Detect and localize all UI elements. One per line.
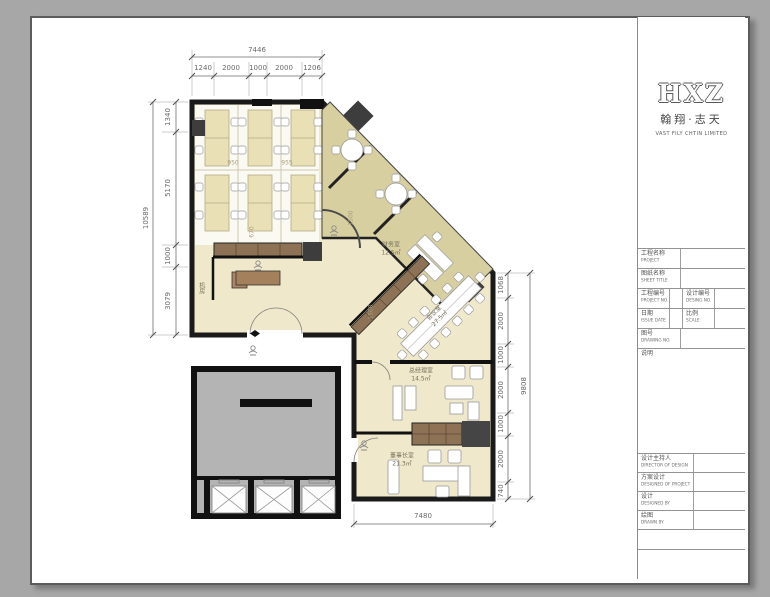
sign-row-designed: 设计DESIGNED BY	[638, 492, 745, 511]
signature-table: 设计主持人DIRECTOR OF DESIGN 方案设计DESIGNED OF …	[638, 453, 745, 550]
sign-row-director: 设计主持人DIRECTOR OF DESIGN	[638, 454, 745, 473]
info-row-drawing-no: 图号DRAWING NO.	[638, 329, 745, 349]
label-cn: 说明	[641, 350, 681, 358]
label-en: DIRECTOR OF DESIGN	[641, 463, 685, 468]
value-cell	[681, 349, 745, 391]
sign-row-drawn: 绘图DRAWN BY	[638, 511, 745, 530]
room-label-gm: 总经理室14.5㎡	[409, 368, 433, 383]
dim-inner-0: 950	[227, 160, 238, 167]
label-en: PROJECT NO.	[641, 298, 665, 303]
dim-right-total: 9808	[520, 377, 528, 395]
label-en: DESING NO.	[686, 298, 710, 303]
dim-top-seg-2: 1000	[249, 64, 267, 72]
room-label-finance: 财务室12.5㎡	[381, 242, 400, 257]
drawing-page: 7446 1240 2000 1000 2000 1206 10589 1340…	[0, 0, 770, 597]
dim-right-seg-2: 1000	[497, 346, 505, 364]
dim-inner-1: 955	[281, 160, 292, 167]
value-cell	[681, 269, 745, 288]
logo-english-name: VAST FILY CHTIN LIMITED	[638, 131, 745, 137]
value-cell	[670, 289, 683, 308]
label-cn: 工程名称	[641, 250, 680, 258]
room-label-machine: 机房	[197, 282, 205, 294]
dim-left-seg-3: 3079	[164, 292, 172, 310]
title-block: HXZ 翰翔·志天 VAST FILY CHTIN LIMITED 工程名称PR…	[637, 17, 745, 579]
label-cn: 设计主持人	[641, 455, 693, 463]
label-cn: 比例	[686, 310, 714, 318]
label-en: PROJECT	[641, 258, 674, 263]
label-cn: 图纸名称	[641, 270, 680, 278]
info-row-sheet-title: 图纸名称SHEET TITLE	[638, 269, 745, 289]
info-row-project-no: 工程编号PROJECT NO. 设计编号DESING NO.	[638, 289, 745, 309]
dim-top-seg-4: 1206	[303, 64, 321, 72]
dim-left-seg-0: 1340	[164, 108, 172, 126]
room-label-chairman: 董事长室21.3㎡	[390, 453, 414, 468]
info-row-project: 工程名称PROJECT	[638, 249, 745, 269]
elevator-core	[194, 369, 338, 516]
label-cn: 工程编号	[641, 290, 669, 298]
label-cn: 图号	[641, 330, 680, 338]
dim-right-seg-4: 1000	[497, 415, 505, 433]
label-en: SCALE	[686, 318, 710, 323]
dim-right-seg-3: 2000	[497, 381, 505, 399]
dim-right-seg-6: 740	[497, 484, 505, 497]
label-cn: 日期	[641, 310, 669, 318]
dim-inner-4: 1500	[368, 304, 375, 319]
label-en: DESIGNED OF PROJECT	[641, 482, 685, 487]
info-row-notes: 说明	[638, 349, 745, 391]
label-en: SHEET TITLE	[641, 278, 674, 283]
value-cell	[694, 511, 745, 529]
company-logo: HXZ 翰翔·志天 VAST FILY CHTIN LIMITED	[638, 79, 745, 137]
dim-left-seg-1: 5170	[164, 179, 172, 197]
dim-left-seg-2: 1000	[164, 247, 172, 265]
label-en: DRAWING NO.	[641, 338, 674, 343]
dim-inner-2: 670	[249, 226, 256, 237]
sign-row-scheme: 方案设计DESIGNED OF PROJECT	[638, 473, 745, 492]
divider-cabinets	[412, 421, 490, 447]
label-cn: 设计	[641, 493, 693, 501]
dim-left-total: 10589	[142, 207, 150, 229]
logo-chinese-name: 翰翔·志天	[638, 111, 745, 127]
label-cn: 设计编号	[686, 290, 714, 298]
label-cn: 方案设计	[641, 474, 693, 482]
dim-right-seg-1: 2000	[497, 312, 505, 330]
dim-inner-3: 1500	[348, 210, 355, 225]
value-cell	[694, 530, 745, 549]
sign-row-empty	[638, 530, 745, 550]
dim-right-seg-0: 1068	[497, 276, 505, 294]
dim-top-seg-0: 1240	[194, 64, 212, 72]
value-cell	[681, 249, 745, 268]
label-en: DRAWN BY	[641, 520, 685, 525]
value-cell	[715, 309, 745, 328]
value-cell	[694, 473, 745, 491]
value-cell	[694, 492, 745, 510]
value-cell	[670, 309, 683, 328]
value-cell	[715, 289, 745, 308]
logo-monogram: HXZ	[638, 79, 745, 108]
value-cell	[681, 329, 745, 348]
sheet-info-table: 工程名称PROJECT 图纸名称SHEET TITLE 工程编号PROJECT …	[638, 248, 745, 391]
label-cn: 绘图	[641, 512, 693, 520]
label-en: DESIGNED BY	[641, 501, 685, 506]
dim-top-seg-3: 2000	[275, 64, 293, 72]
dim-top-seg-1: 2000	[222, 64, 240, 72]
info-row-date-scale: 日期ISSUE DATE 比例SCALE	[638, 309, 745, 329]
dim-bottom-total: 7480	[414, 512, 432, 520]
value-cell	[694, 454, 745, 472]
reception-desk	[236, 271, 280, 285]
dim-top-total: 7446	[248, 46, 266, 54]
person-icon-entrance	[249, 346, 257, 355]
label-en: ISSUE DATE	[641, 318, 665, 323]
cabinet-row-office	[214, 243, 302, 256]
dim-right-seg-5: 2000	[497, 450, 505, 468]
